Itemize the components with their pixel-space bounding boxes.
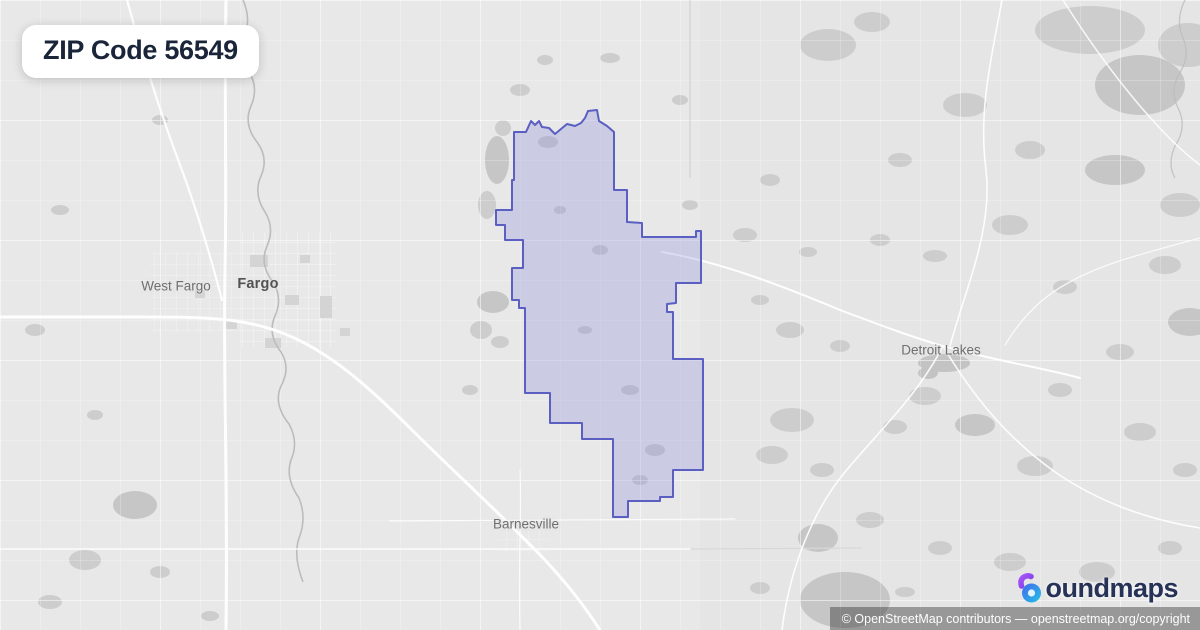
city-label-detroit-lakes: Detroit Lakes xyxy=(901,343,981,358)
attribution-bar: © OpenStreetMap contributors — openstree… xyxy=(830,607,1200,630)
attribution-text[interactable]: © OpenStreetMap contributors — openstree… xyxy=(842,612,1190,626)
map-canvas[interactable]: West Fargo Fargo Detroit Lakes Barnesvil… xyxy=(0,0,1200,630)
zip-badge: ZIP Code 56549 xyxy=(22,25,259,78)
zip-badge-title: ZIP Code 56549 xyxy=(43,35,238,65)
city-label-barnesville: Barnesville xyxy=(493,517,559,532)
city-label-west-fargo: West Fargo xyxy=(141,279,211,294)
boundmaps-logo[interactable]: oundmaps xyxy=(1017,573,1178,604)
basemap-svg xyxy=(0,0,1200,630)
boundmaps-b-icon xyxy=(1017,573,1044,604)
logo-wordmark: oundmaps xyxy=(1045,573,1178,604)
city-label-fargo: Fargo xyxy=(237,276,278,292)
